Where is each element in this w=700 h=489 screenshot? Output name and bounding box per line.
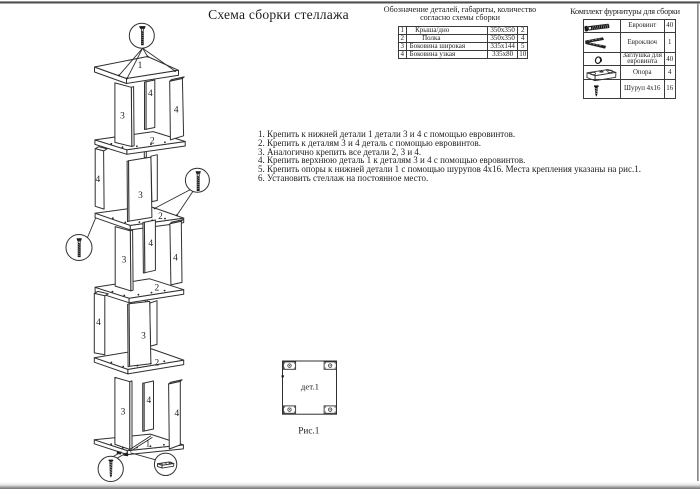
- svg-text:3: 3: [141, 332, 146, 342]
- svg-text:2: 2: [158, 212, 163, 222]
- svg-text:4: 4: [148, 239, 153, 249]
- svg-text:2: 2: [154, 283, 159, 293]
- svg-text:2: 2: [154, 358, 159, 368]
- svg-text:4: 4: [174, 409, 179, 419]
- svg-text:4: 4: [146, 396, 151, 406]
- svg-text:3: 3: [138, 191, 143, 201]
- svg-text:2: 2: [150, 137, 155, 147]
- svg-text:1: 1: [138, 61, 143, 71]
- svg-text:1: 1: [146, 440, 151, 450]
- svg-text:4: 4: [95, 175, 100, 185]
- svg-text:4: 4: [173, 254, 178, 264]
- svg-text:3: 3: [121, 408, 126, 418]
- svg-text:3: 3: [122, 256, 127, 266]
- svg-text:4: 4: [148, 89, 153, 99]
- svg-text:Рис.1: Рис.1: [298, 426, 319, 436]
- svg-text:дет.1: дет.1: [301, 381, 319, 391]
- svg-text:4: 4: [174, 106, 179, 116]
- svg-text:3: 3: [120, 112, 125, 122]
- svg-text:4: 4: [96, 318, 101, 328]
